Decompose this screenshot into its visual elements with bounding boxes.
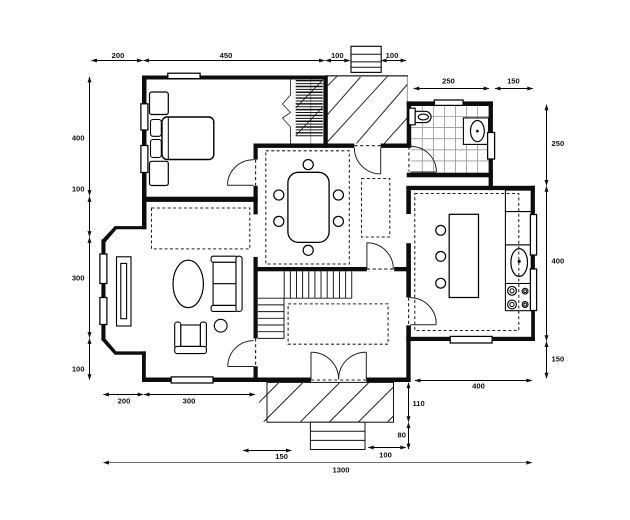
svg-text:150: 150 [507,76,520,85]
svg-text:100: 100 [379,451,392,460]
svg-text:100: 100 [72,184,85,193]
svg-text:100: 100 [331,51,344,60]
svg-text:450: 450 [220,51,233,60]
svg-text:400: 400 [552,257,565,266]
svg-text:300: 300 [72,273,85,282]
svg-text:100: 100 [72,365,85,374]
svg-text:200: 200 [118,396,131,405]
svg-text:1300: 1300 [333,465,350,474]
svg-text:250: 250 [552,139,565,148]
svg-text:110: 110 [413,399,425,408]
svg-text:400: 400 [72,133,85,142]
svg-text:150: 150 [275,452,288,461]
svg-text:80: 80 [398,430,406,439]
svg-text:400: 400 [472,381,485,390]
svg-text:200: 200 [112,51,125,60]
svg-text:300: 300 [183,396,196,405]
svg-text:150: 150 [552,355,565,364]
svg-text:250: 250 [442,76,455,85]
svg-text:100: 100 [386,51,399,60]
